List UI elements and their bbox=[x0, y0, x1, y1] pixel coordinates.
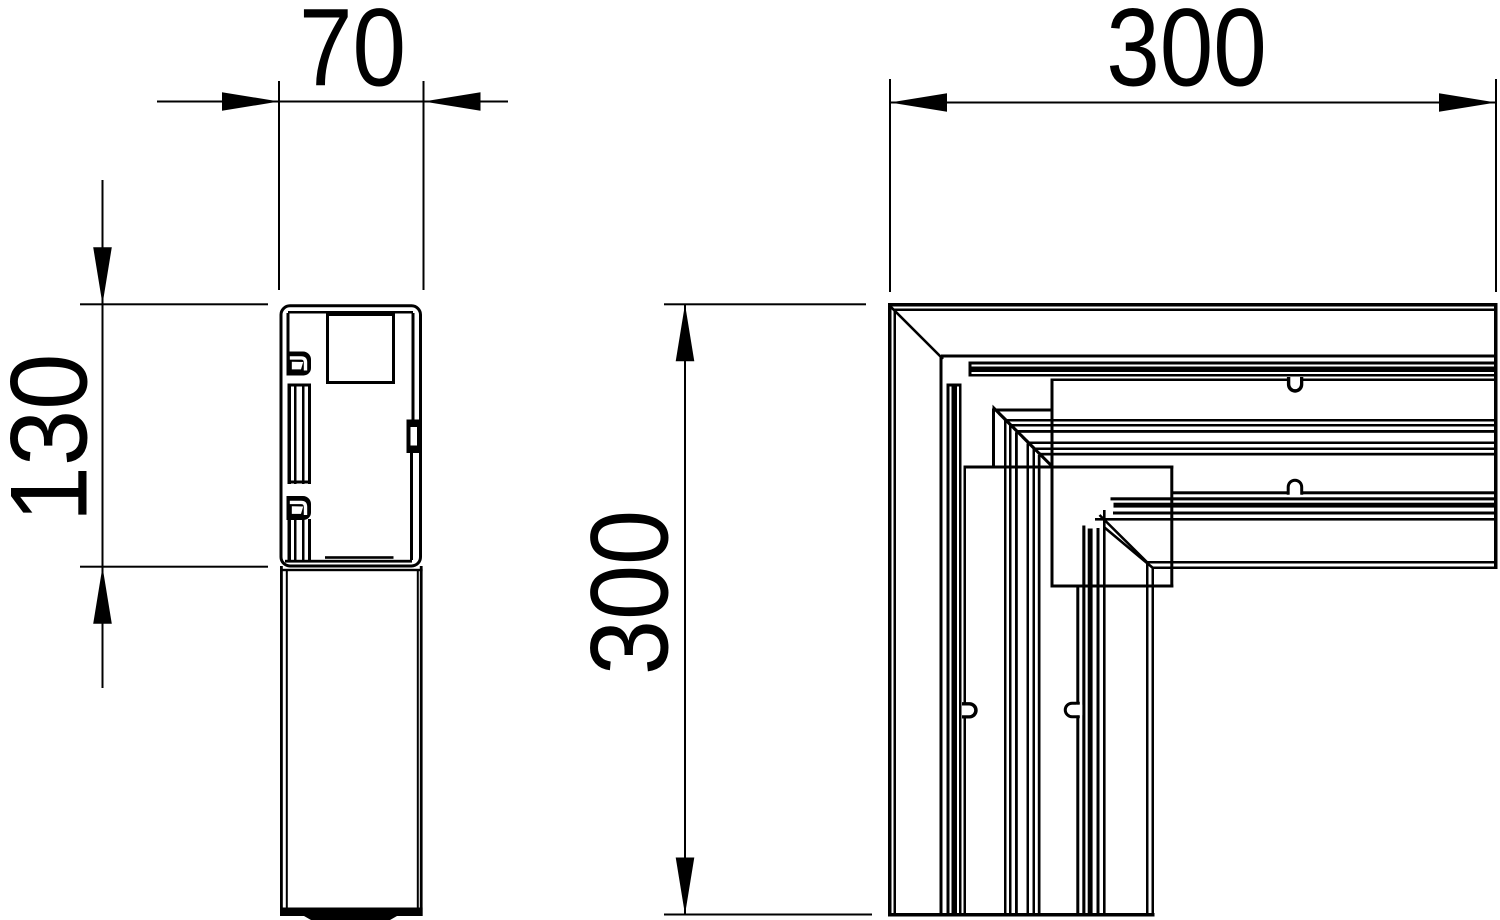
svg-text:70: 70 bbox=[299, 0, 406, 109]
svg-text:300: 300 bbox=[569, 510, 692, 675]
svg-text:130: 130 bbox=[0, 354, 110, 523]
svg-text:300: 300 bbox=[1106, 0, 1267, 109]
